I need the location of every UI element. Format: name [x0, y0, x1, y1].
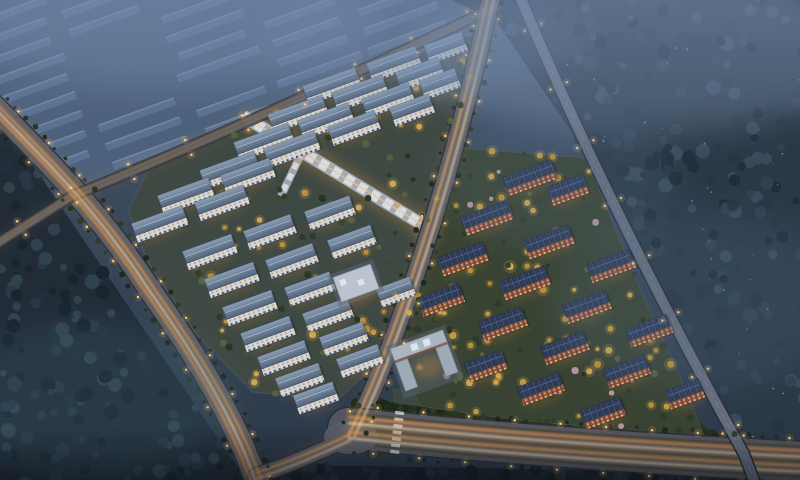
scene-canvas	[0, 0, 800, 480]
aerial-night-rendering	[0, 0, 800, 480]
atmosphere	[0, 0, 800, 480]
